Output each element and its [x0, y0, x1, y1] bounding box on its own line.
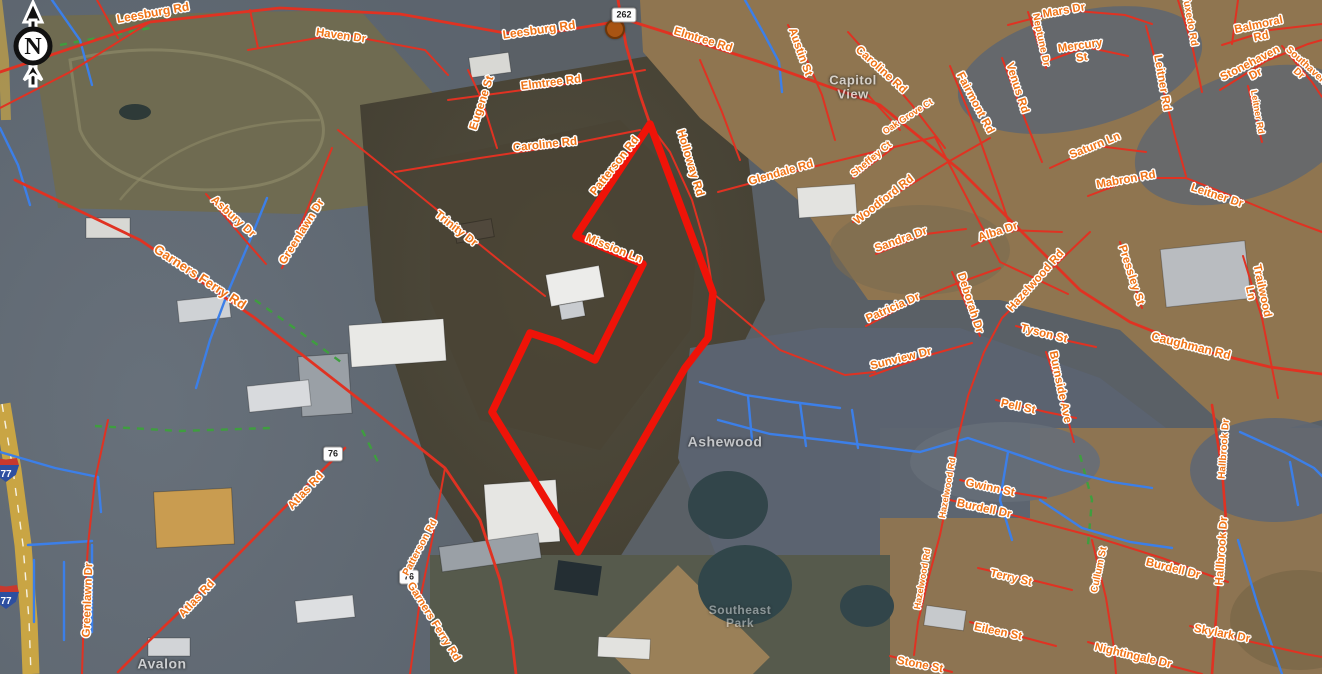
- compass-letter: N: [24, 34, 42, 60]
- place-label: Ashewood: [688, 434, 763, 449]
- route-shield: 262: [611, 8, 636, 23]
- route-shield: 76: [323, 447, 343, 462]
- place-label: Avalon: [137, 656, 186, 671]
- compass-rose: N: [0, 0, 66, 92]
- place-label: Southeast Park: [709, 604, 772, 630]
- basemap-imagery: [0, 0, 1322, 674]
- satellite-map-view[interactable]: N 26276767777 Leesburg RdLeesburg RdHave…: [0, 0, 1322, 674]
- place-label: Capitol View: [829, 74, 877, 103]
